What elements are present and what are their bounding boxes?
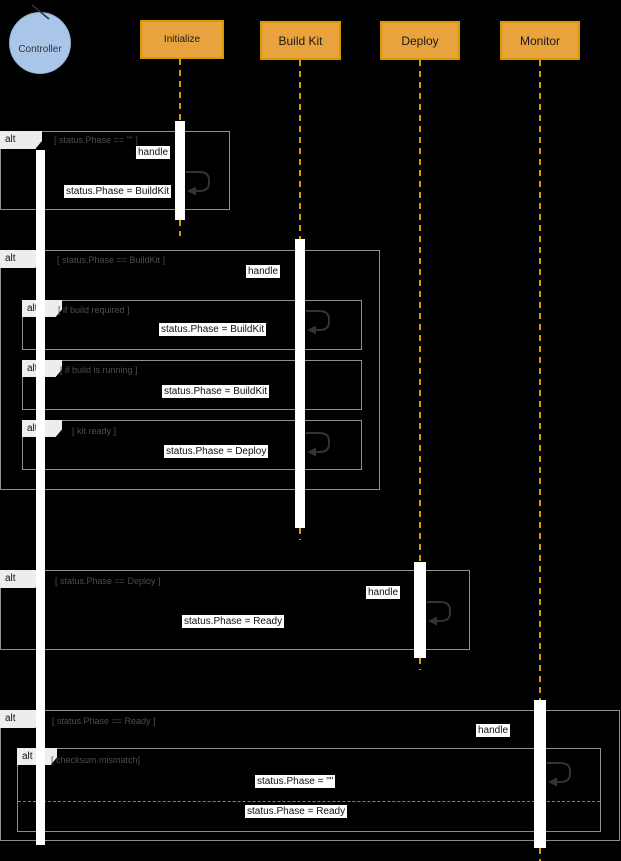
monitor-lifeline	[539, 60, 541, 700]
alt-condition-phase-buildkit: [ status.Phase == BuildKit ]	[57, 255, 165, 265]
message-set-phase-deploy: status.Phase = Deploy	[164, 445, 268, 458]
deploy-lifeline-tail	[419, 658, 421, 670]
alt-condition-phase-empty: [ status.Phase == "" ]	[54, 135, 138, 145]
message-set-phase-empty: status.Phase = ""	[255, 775, 335, 788]
message-set-phase-ready: status.Phase = Ready	[182, 615, 284, 628]
buildkit-label: Build Kit	[278, 34, 322, 48]
deploy-self-call-icon	[426, 597, 454, 627]
message-set-phase-buildkit: status.Phase = BuildKit	[162, 385, 269, 398]
monitor-activation-bar	[534, 700, 546, 848]
buildkit-activation-bar	[295, 239, 305, 528]
alt-else-divider	[18, 801, 600, 802]
message-return-buildkit: status.Phase = BuildKit	[64, 185, 171, 198]
initialize-lifeline-tail	[179, 220, 181, 236]
controller-label: Controller	[9, 44, 71, 55]
initialize-lifeline	[179, 59, 181, 121]
controller-activation-bar	[36, 150, 45, 845]
message-set-phase-buildkit: status.Phase = BuildKit	[159, 323, 266, 336]
sequence-diagram-canvas: Controller Initialize Build Kit Deploy M…	[0, 0, 621, 861]
alt-condition-build-required: [ if build required ]	[58, 305, 130, 315]
alt-condition-kit-ready: [ kit ready ]	[72, 426, 116, 436]
control-arrow-icon	[28, 2, 54, 22]
buildkit-self-call-icon	[305, 428, 333, 458]
monitor-self-call-icon	[546, 758, 574, 788]
deploy-label: Deploy	[401, 34, 438, 48]
lifeline-header-monitor: Monitor	[500, 21, 580, 60]
buildkit-lifeline	[299, 60, 301, 239]
monitor-label: Monitor	[520, 34, 560, 48]
alt-condition-phase-deploy: [ status.Phase == Deploy ]	[55, 576, 161, 586]
buildkit-lifeline-tail	[299, 528, 301, 540]
alt-condition-build-running: [ if build is running ]	[60, 365, 138, 375]
message-set-phase-ready-final: status.Phase = Ready	[245, 805, 347, 818]
deploy-activation-bar	[414, 562, 426, 658]
monitor-lifeline-tail	[539, 848, 541, 861]
message-handle-monitor: handle	[476, 724, 510, 737]
deploy-lifeline	[419, 60, 421, 562]
message-handle-initialize: handle	[136, 146, 170, 159]
lifeline-header-initialize: Initialize	[140, 20, 224, 59]
alt-condition-phase-ready: [ status.Phase == Ready ]	[52, 716, 156, 726]
alt-condition-checksum-mismatch: [ checksum mismatch]	[51, 755, 140, 765]
lifeline-header-deploy: Deploy	[380, 21, 460, 60]
initialize-label: Initialize	[164, 34, 200, 45]
lifeline-header-buildkit: Build Kit	[260, 21, 341, 60]
buildkit-self-call-icon	[305, 306, 333, 336]
initialize-activation-bar	[175, 121, 185, 220]
message-handle-deploy: handle	[366, 586, 400, 599]
initialize-self-call-icon	[185, 167, 213, 197]
message-handle-buildkit: handle	[246, 265, 280, 278]
alt-operator: alt	[0, 131, 42, 149]
